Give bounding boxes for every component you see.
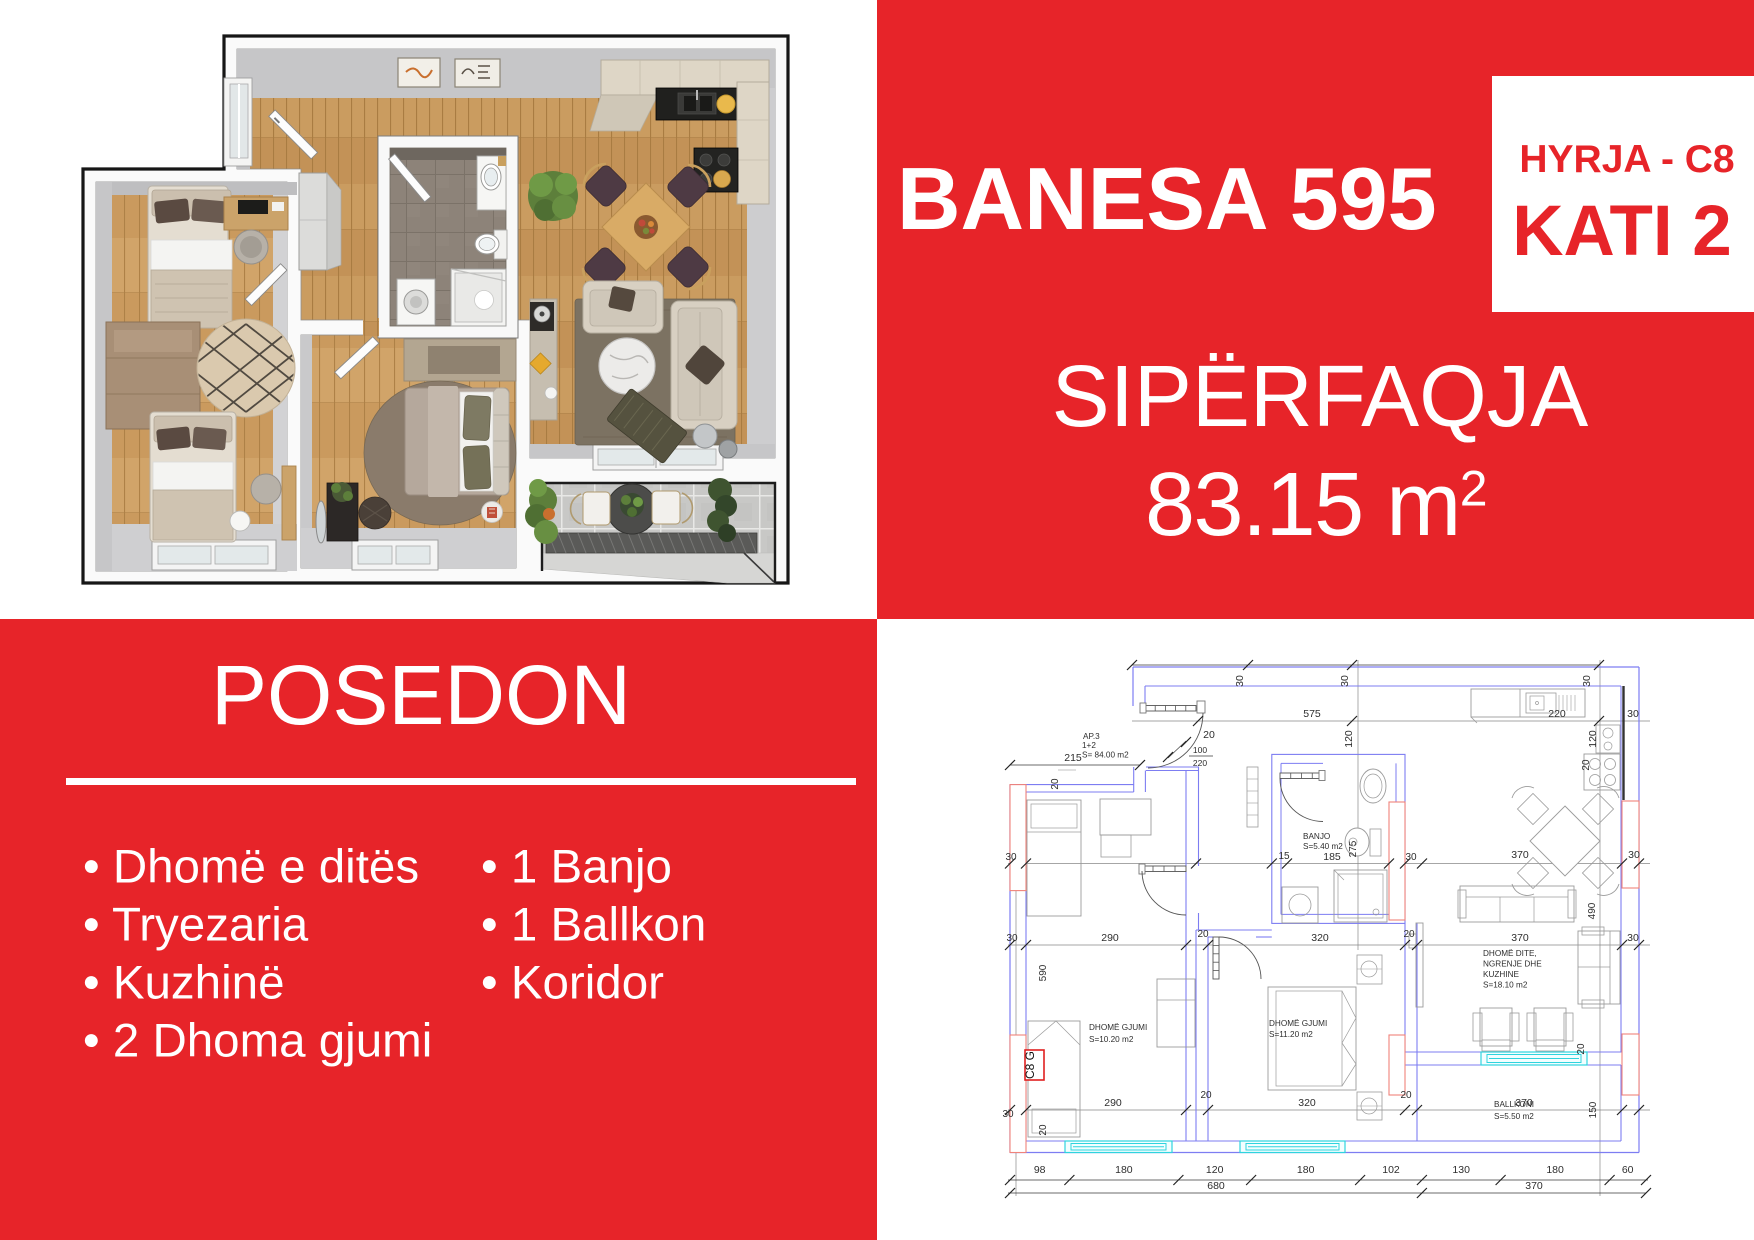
svg-text:S=18.10 m2: S=18.10 m2 — [1483, 981, 1528, 990]
svg-text:180: 180 — [1115, 1164, 1133, 1176]
svg-text:• Tryezaria: • Tryezaria — [83, 899, 309, 952]
svg-text:370: 370 — [1511, 849, 1529, 861]
svg-text:120: 120 — [1343, 730, 1355, 748]
svg-text:30: 30 — [1234, 675, 1246, 687]
svg-text:290: 290 — [1104, 1097, 1122, 1109]
svg-text:30: 30 — [1581, 675, 1593, 687]
svg-text:20: 20 — [1403, 929, 1415, 940]
svg-text:100: 100 — [1193, 745, 1207, 755]
svg-text:370: 370 — [1515, 1097, 1533, 1109]
svg-text:20: 20 — [1200, 1090, 1212, 1101]
svg-text:20: 20 — [1050, 778, 1061, 790]
svg-text:130: 130 — [1452, 1164, 1470, 1176]
svg-text:KATI 2: KATI 2 — [1512, 192, 1732, 271]
svg-text:180: 180 — [1546, 1164, 1564, 1176]
svg-text:185: 185 — [1323, 851, 1341, 863]
svg-text:215: 215 — [1064, 752, 1082, 764]
svg-text:C8 G: C8 G — [1023, 1051, 1037, 1079]
svg-text:• Kuzhinë: • Kuzhinë — [83, 957, 284, 1010]
svg-text:30: 30 — [1628, 849, 1640, 861]
svg-text:20: 20 — [1581, 759, 1592, 771]
svg-text:DHOMË GJUMI: DHOMË GJUMI — [1089, 1022, 1147, 1032]
svg-text:83.15 m2: 83.15 m2 — [1145, 455, 1488, 555]
svg-text:98: 98 — [1034, 1164, 1046, 1176]
svg-text:30: 30 — [1005, 852, 1017, 863]
svg-text:HYRJA - C8: HYRJA - C8 — [1519, 138, 1734, 181]
svg-text:180: 180 — [1297, 1164, 1315, 1176]
svg-text:320: 320 — [1298, 1097, 1316, 1109]
svg-text:220: 220 — [1548, 708, 1566, 720]
svg-text:SIPËRFAQJA: SIPËRFAQJA — [1052, 348, 1589, 445]
svg-text:220: 220 — [1193, 758, 1207, 768]
svg-text:KUZHINE: KUZHINE — [1483, 970, 1519, 979]
svg-text:320: 320 — [1311, 932, 1329, 944]
svg-text:370: 370 — [1511, 932, 1529, 944]
svg-text:DHOMË GJUMI: DHOMË GJUMI — [1269, 1018, 1327, 1028]
svg-text:30: 30 — [1627, 932, 1639, 944]
svg-text:BANESA 595: BANESA 595 — [897, 149, 1437, 248]
svg-text:20: 20 — [1038, 1124, 1049, 1136]
svg-text:20: 20 — [1197, 929, 1209, 940]
svg-text:S= 84.00 m2: S= 84.00 m2 — [1082, 751, 1129, 760]
svg-text:290: 290 — [1101, 932, 1119, 944]
svg-text:• 2 Dhoma gjumi: • 2 Dhoma gjumi — [83, 1015, 432, 1068]
svg-text:• Dhomë e ditës: • Dhomë e ditës — [83, 841, 419, 894]
svg-text:BANJO: BANJO — [1303, 832, 1330, 841]
svg-text:30: 30 — [1002, 1109, 1014, 1120]
svg-text:680: 680 — [1207, 1180, 1225, 1192]
svg-text:490: 490 — [1587, 902, 1598, 919]
svg-text:102: 102 — [1382, 1164, 1400, 1176]
svg-text:• 1 Banjo: • 1 Banjo — [481, 841, 672, 894]
svg-text:370: 370 — [1525, 1180, 1543, 1192]
svg-text:275: 275 — [1348, 840, 1359, 857]
svg-text:S=5.50 m2: S=5.50 m2 — [1494, 1112, 1534, 1121]
svg-text:30: 30 — [1339, 675, 1351, 687]
svg-text:590: 590 — [1038, 964, 1049, 981]
svg-text:120: 120 — [1587, 730, 1599, 748]
svg-text:575: 575 — [1303, 708, 1321, 720]
svg-text:NGRENJE DHE: NGRENJE DHE — [1483, 960, 1542, 969]
svg-text:15: 15 — [1278, 851, 1290, 862]
svg-text:30: 30 — [1627, 708, 1639, 720]
svg-text:S=10.20 m2: S=10.20 m2 — [1089, 1035, 1134, 1044]
svg-text:DHOMË DITE,: DHOMË DITE, — [1483, 948, 1537, 958]
svg-text:• 1 Ballkon: • 1 Ballkon — [481, 899, 706, 952]
svg-text:1+2: 1+2 — [1082, 741, 1096, 750]
svg-text:30: 30 — [1405, 852, 1417, 863]
svg-text:20: 20 — [1576, 1043, 1587, 1055]
svg-text:• Koridor: • Koridor — [481, 957, 664, 1010]
svg-text:30: 30 — [1006, 933, 1018, 944]
svg-text:150: 150 — [1588, 1101, 1599, 1118]
svg-text:20: 20 — [1400, 1090, 1412, 1101]
svg-text:AP.3: AP.3 — [1083, 732, 1100, 741]
svg-text:S=11.20 m2: S=11.20 m2 — [1269, 1030, 1313, 1039]
svg-text:120: 120 — [1206, 1164, 1224, 1176]
svg-text:S=5.40 m2: S=5.40 m2 — [1303, 842, 1343, 851]
svg-text:60: 60 — [1622, 1164, 1634, 1176]
svg-text:POSEDON: POSEDON — [211, 648, 631, 742]
svg-text:20: 20 — [1203, 729, 1215, 741]
